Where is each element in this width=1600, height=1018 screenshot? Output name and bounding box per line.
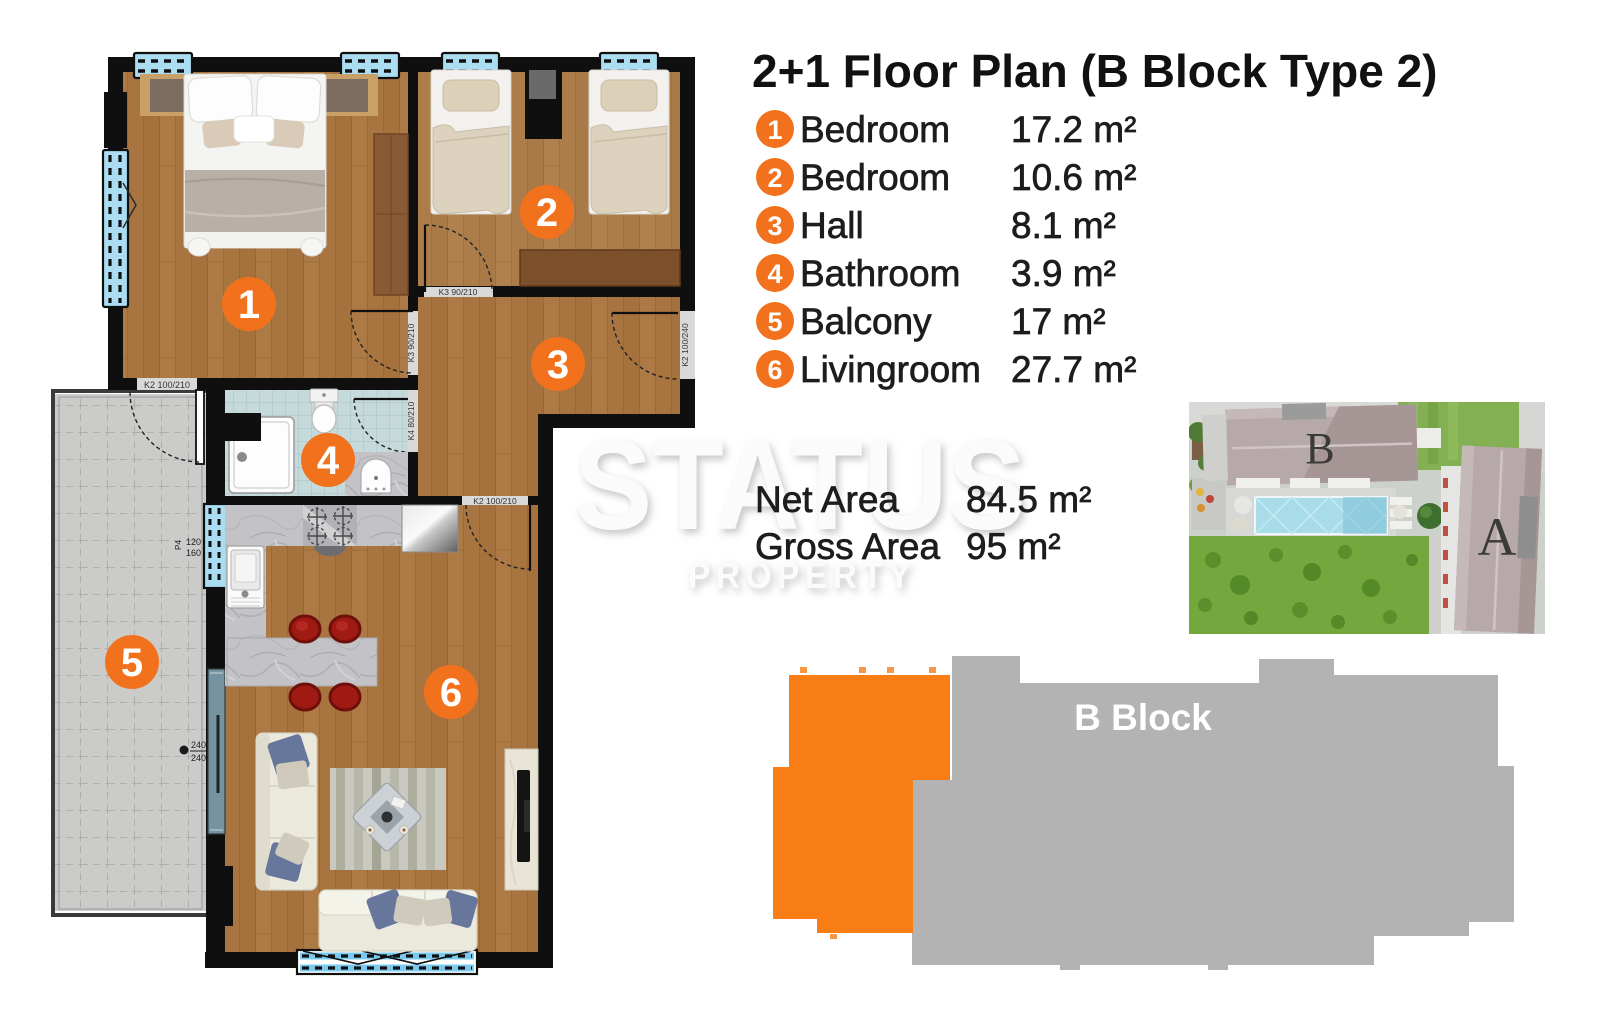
svg-text:120: 120 xyxy=(186,537,201,547)
svg-text:10.6 m²: 10.6 m² xyxy=(1011,157,1136,198)
svg-text:6: 6 xyxy=(440,671,462,715)
svg-text:6: 6 xyxy=(767,355,782,385)
svg-text:95 m²: 95 m² xyxy=(966,526,1061,567)
svg-text:5: 5 xyxy=(121,641,143,685)
svg-text:Hall: Hall xyxy=(800,205,864,246)
svg-text:4: 4 xyxy=(317,439,340,483)
svg-text:Gross Area: Gross Area xyxy=(755,526,940,567)
svg-text:K3 90/210: K3 90/210 xyxy=(406,323,416,362)
svg-text:240: 240 xyxy=(191,740,206,750)
svg-text:K3 90/210: K3 90/210 xyxy=(439,287,478,297)
svg-text:5: 5 xyxy=(767,307,782,337)
svg-text:2: 2 xyxy=(767,163,782,193)
svg-text:Livingroom: Livingroom xyxy=(800,349,981,390)
svg-text:4: 4 xyxy=(767,259,782,289)
svg-text:3.9 m²: 3.9 m² xyxy=(1011,253,1116,294)
svg-text:Net Area: Net Area xyxy=(755,479,899,520)
svg-text:3: 3 xyxy=(547,343,569,387)
svg-text:Bedroom: Bedroom xyxy=(800,157,950,198)
svg-text:84.5 m²: 84.5 m² xyxy=(966,479,1091,520)
svg-text:K4 80/210: K4 80/210 xyxy=(406,401,416,440)
svg-text:27.7 m²: 27.7 m² xyxy=(1011,349,1136,390)
svg-text:17 m²: 17 m² xyxy=(1011,301,1106,342)
svg-text:B Block: B Block xyxy=(1074,697,1212,738)
svg-text:3: 3 xyxy=(767,211,782,241)
svg-text:A: A xyxy=(1478,507,1517,567)
svg-text:Bedroom: Bedroom xyxy=(800,109,950,150)
svg-text:17.2 m²: 17.2 m² xyxy=(1011,109,1136,150)
svg-text:K2 100/210: K2 100/210 xyxy=(473,496,517,506)
svg-text:Balcony: Balcony xyxy=(800,301,932,342)
svg-text:240: 240 xyxy=(191,753,206,763)
svg-text:160: 160 xyxy=(186,548,201,558)
svg-text:K2 100/210: K2 100/210 xyxy=(144,380,190,390)
svg-text:2: 2 xyxy=(536,191,558,235)
svg-text:K2 100/240: K2 100/240 xyxy=(680,323,690,367)
svg-text:8.1 m²: 8.1 m² xyxy=(1011,205,1116,246)
svg-text:P4: P4 xyxy=(174,540,183,550)
svg-text:Bathroom: Bathroom xyxy=(800,253,960,294)
svg-text:2+1 Floor Plan (B Block Type 2: 2+1 Floor Plan (B Block Type 2) xyxy=(752,45,1438,97)
svg-text:B: B xyxy=(1305,424,1334,473)
svg-text:1: 1 xyxy=(767,115,782,145)
svg-text:1: 1 xyxy=(238,283,260,327)
